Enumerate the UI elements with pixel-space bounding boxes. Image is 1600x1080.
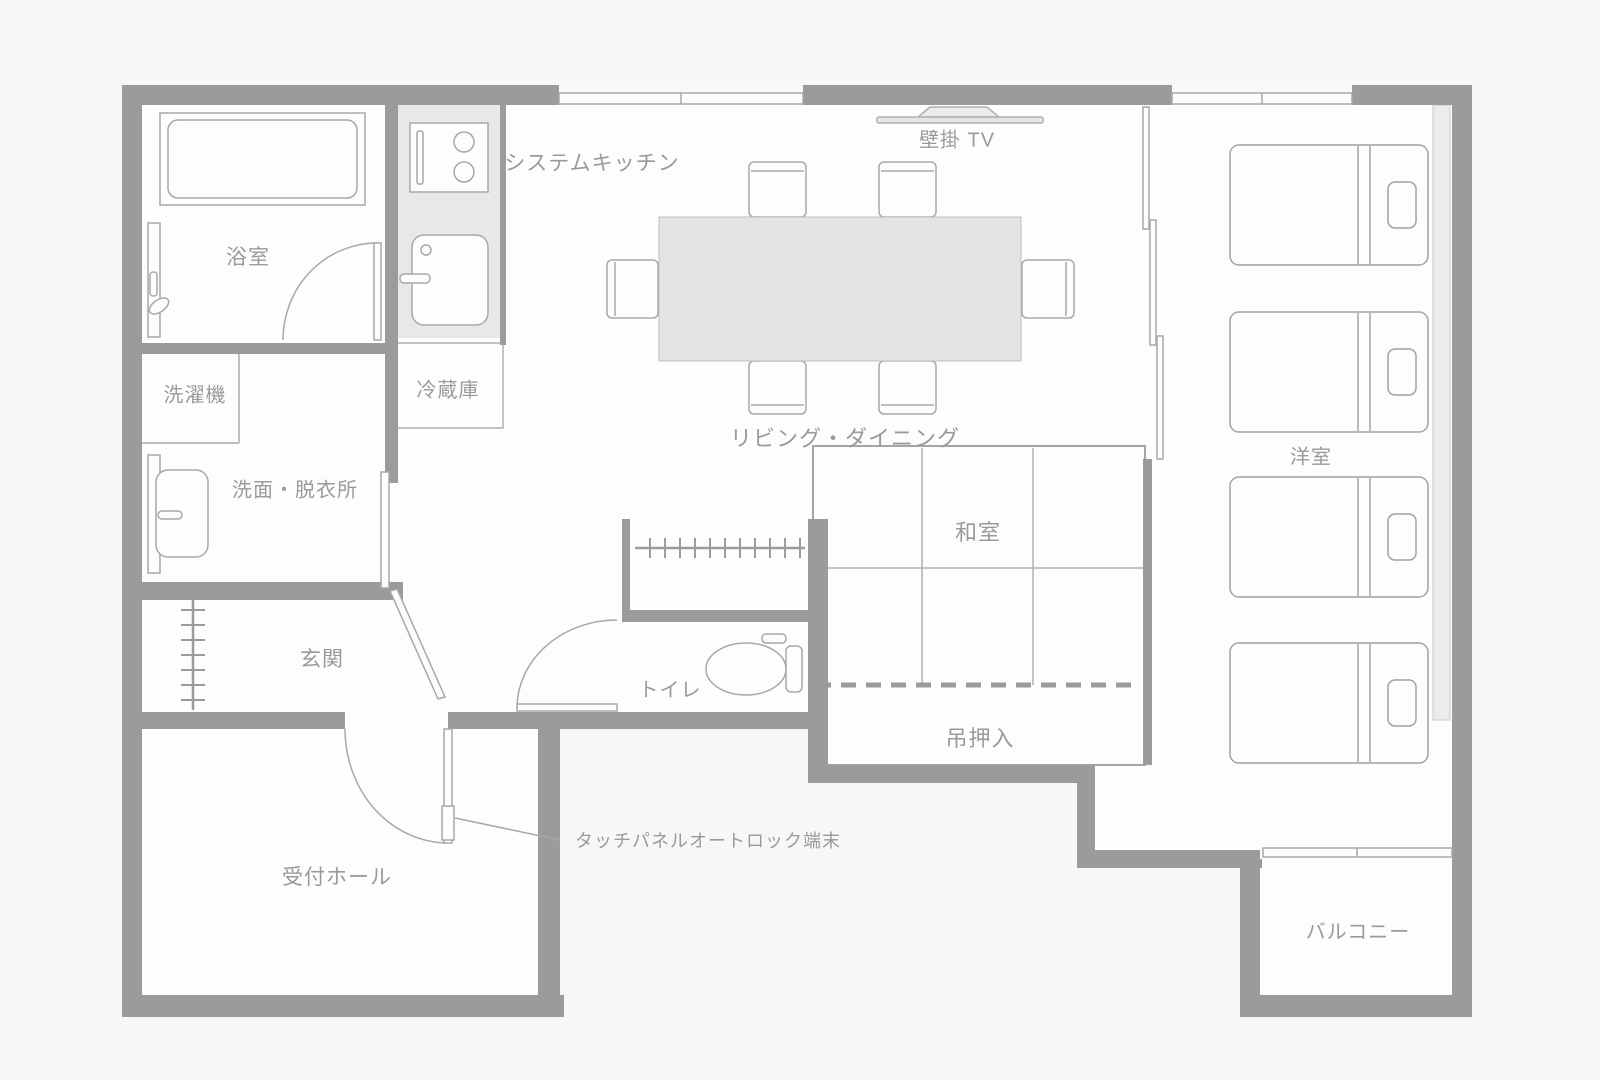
wall-toilet-top xyxy=(622,610,828,622)
wall-closet-left xyxy=(622,519,630,617)
chair xyxy=(879,162,936,217)
wall-genkan-bottom-b xyxy=(448,712,828,729)
wall-right xyxy=(1452,85,1472,1017)
wall-washitsu-bottom xyxy=(808,765,1095,783)
bed xyxy=(1230,477,1428,597)
floor-reception xyxy=(142,712,560,995)
wall-bottom-right xyxy=(1240,995,1472,1017)
bed xyxy=(1230,312,1428,432)
wall-genkan-bottom-a xyxy=(142,712,345,729)
room-label-system-kitchen: システムキッチン xyxy=(504,147,679,177)
wall-washroom-genkan xyxy=(142,582,403,600)
kitchen-sink-icon xyxy=(400,235,488,325)
floor-genkan xyxy=(142,582,403,712)
wall-toilet-washitsu xyxy=(808,519,828,783)
bathtub-icon xyxy=(160,113,365,205)
wall-washitsu-right xyxy=(1143,459,1152,765)
stove-icon xyxy=(410,123,488,192)
wall-reception-right xyxy=(538,729,560,999)
washroom-sliding-door xyxy=(381,472,389,588)
floor-plan: 浴室洗濯機洗面・脱衣所玄関受付ホールシステムキッチン冷蔵庫リビング・ダイニング壁… xyxy=(0,0,1600,1080)
chair xyxy=(749,361,806,414)
room-label-bathroom: 浴室 xyxy=(226,241,270,271)
wall-bath-kitchen xyxy=(385,105,398,483)
duct-space xyxy=(1433,105,1450,720)
room-label-reception-hall: 受付ホール xyxy=(282,861,392,891)
chair xyxy=(607,260,658,318)
wall-left xyxy=(122,85,142,1017)
washitsu-room xyxy=(813,446,1145,765)
window-top-right xyxy=(1172,85,1352,105)
wall-balcony-left xyxy=(1240,850,1260,995)
chair xyxy=(749,162,806,217)
wall-lower-horizontal xyxy=(1077,850,1262,868)
autolock-terminal-icon xyxy=(442,806,454,840)
room-label-western-room: 洋室 xyxy=(1290,441,1332,470)
room-label-toilet: トイレ xyxy=(639,674,702,703)
washitsu-border xyxy=(813,446,1145,765)
room-label-balcony: バルコニー xyxy=(1306,916,1411,945)
bed xyxy=(1230,145,1428,265)
dining-table xyxy=(659,217,1021,361)
room-label-wall-tv: 壁掛 TV xyxy=(919,124,995,153)
room-label-hanging-closet: 吊押入 xyxy=(945,721,1014,753)
room-label-autolock-terminal: タッチパネルオートロック端末 xyxy=(575,827,841,853)
room-label-living-dining: リビング・ダイニング xyxy=(730,421,960,453)
window-balcony xyxy=(1260,845,1452,859)
wall-kitchen-right xyxy=(500,105,506,345)
bed xyxy=(1230,643,1428,763)
room-label-genkan: 玄関 xyxy=(300,643,344,673)
room-label-washitsu: 和室 xyxy=(955,515,1001,547)
wall-bathroom-bottom xyxy=(142,343,385,354)
window-top-left xyxy=(559,85,803,105)
chair xyxy=(879,361,936,414)
washroom-sink-icon xyxy=(148,455,208,573)
room-label-washing-machine: 洗濯機 xyxy=(164,379,227,408)
room-label-washroom: 洗面・脱衣所 xyxy=(232,474,358,503)
wall-bottom-left xyxy=(122,995,564,1017)
chair xyxy=(1022,260,1074,318)
room-label-refrigerator: 冷蔵庫 xyxy=(417,374,480,403)
